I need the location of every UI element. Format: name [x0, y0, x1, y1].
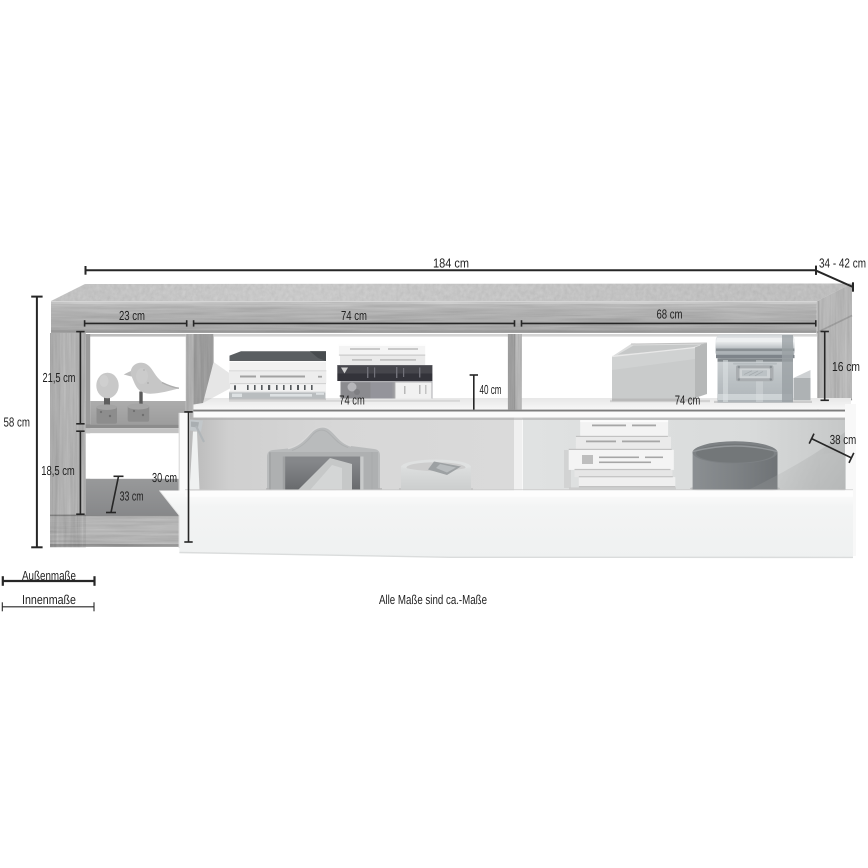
svg-text:74 cm: 74 cm	[341, 308, 367, 323]
svg-text:38 cm: 38 cm	[830, 432, 857, 447]
svg-text:Außenmaße: Außenmaße	[22, 568, 76, 583]
svg-text:34 - 42 cm: 34 - 42 cm	[819, 255, 866, 270]
svg-text:23 cm: 23 cm	[119, 308, 145, 323]
svg-text:33 cm: 33 cm	[120, 489, 144, 504]
svg-text:74 cm: 74 cm	[675, 393, 701, 408]
svg-text:68 cm: 68 cm	[657, 307, 683, 322]
svg-text:21,5 cm: 21,5 cm	[43, 370, 76, 385]
svg-text:184 cm: 184 cm	[433, 255, 469, 270]
svg-text:16 cm: 16 cm	[832, 359, 860, 374]
svg-text:18,5 cm: 18,5 cm	[41, 463, 75, 478]
svg-text:40 cm: 40 cm	[480, 382, 502, 397]
svg-text:58 cm: 58 cm	[4, 415, 31, 430]
svg-text:74 cm: 74 cm	[339, 392, 365, 407]
svg-text:Innenmaße: Innenmaße	[22, 592, 76, 607]
svg-text:30 cm: 30 cm	[152, 470, 177, 485]
svg-text:Alle Maße sind ca.-Maße: Alle Maße sind ca.-Maße	[379, 592, 487, 607]
